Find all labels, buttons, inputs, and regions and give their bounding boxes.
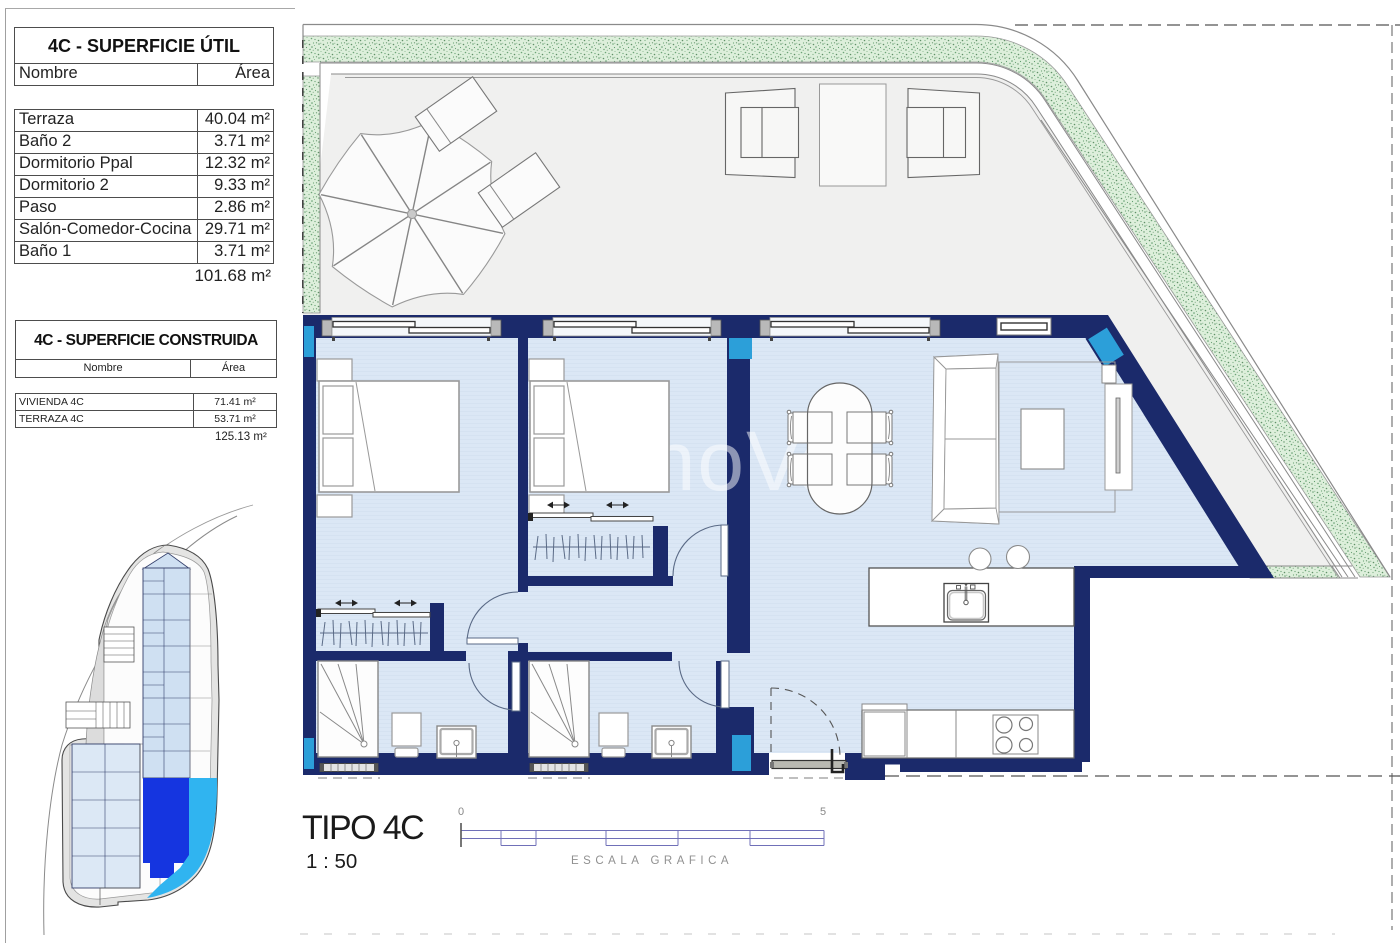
svg-text:ESCALA GRAFICA: ESCALA GRAFICA — [571, 855, 733, 867]
svg-text:0: 0 — [458, 806, 464, 818]
svg-text:5: 5 — [820, 806, 826, 818]
svg-text:1 : 50: 1 : 50 — [306, 850, 357, 873]
svg-text:TIPO 4C: TIPO 4C — [302, 809, 424, 847]
